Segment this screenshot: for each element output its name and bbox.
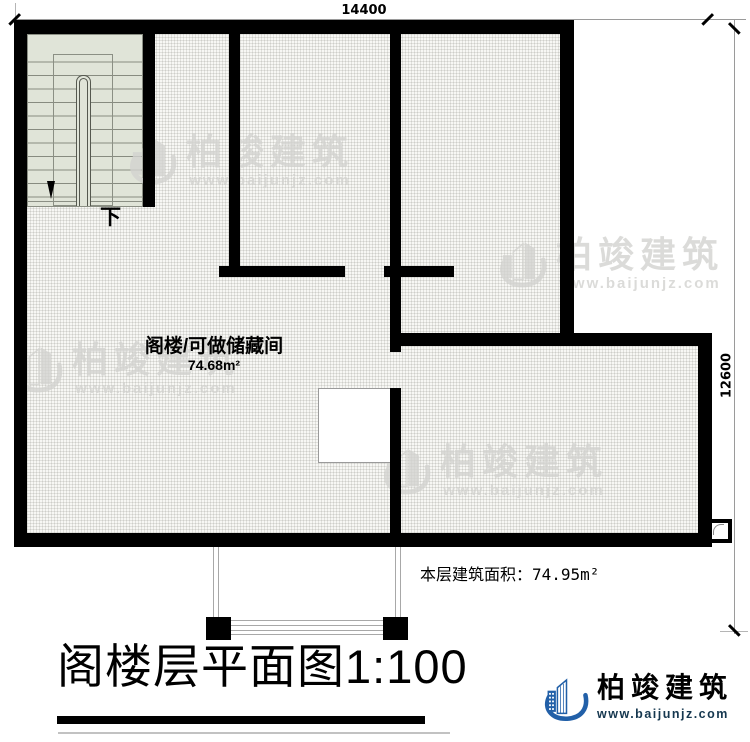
- sheet-title: 阁楼层平面图1:100: [57, 641, 468, 693]
- sheet-title-text: 阁楼层平面图: [57, 640, 345, 693]
- watermark: 柏竣建筑 www.baijunjz.com: [382, 443, 608, 499]
- watermark-url: www.baijunjz.com: [440, 482, 608, 499]
- wall-exterior-right-upper: [560, 20, 574, 346]
- floorplan-canvas: 下 柏竣建筑 www.baijunjz.com 柏竣建筑 www.baijunj…: [0, 0, 750, 742]
- dimension-line-right: [734, 19, 735, 634]
- stair-down-label: 下: [100, 207, 121, 228]
- porch-beam-line: [231, 630, 383, 631]
- room-label: 阁楼/可做储藏间 74.68m²: [114, 336, 314, 373]
- stair-railing-inner: [79, 78, 88, 206]
- porch-column: [206, 617, 231, 640]
- brand-name: 柏竣建筑: [597, 673, 733, 704]
- floor-area-lower-right: [560, 346, 698, 533]
- floor-area-note: 本层建筑面积：74.95m²: [420, 561, 599, 585]
- wall-interior-stub-2: [384, 266, 454, 277]
- title-underline-thin: [58, 732, 450, 734]
- staircase: [27, 34, 143, 207]
- floor-void-opening: [318, 388, 394, 463]
- dimension-height-label: 12600: [720, 346, 735, 406]
- watermark-url: www.baijunjz.com: [556, 275, 724, 292]
- watermark-text: 柏竣建筑 www.baijunjz.com: [556, 236, 724, 292]
- room-name: 阁楼/可做储藏间: [114, 336, 314, 358]
- wall-interior-stub-1: [219, 266, 345, 277]
- porch-column: [383, 617, 408, 640]
- porch-beam-line: [231, 620, 383, 621]
- corner-flue-box: [708, 519, 732, 543]
- wall-interior-vertical-2-upper: [390, 34, 401, 352]
- brand-logo-icon: [543, 673, 590, 725]
- title-underline-bar: [57, 716, 425, 724]
- watermark-url: www.baijunjz.com: [72, 380, 240, 397]
- watermark-text: 柏竣建筑 www.baijunjz.com: [440, 443, 608, 499]
- wall-interior-vertical-2-lower: [390, 388, 401, 533]
- watermark: 柏竣建筑 www.baijunjz.com: [498, 236, 724, 292]
- watermark-text: 柏竣建筑 www.baijunjz.com: [186, 133, 354, 189]
- sheet-title-scale: 1:100: [345, 640, 468, 693]
- stair-down-arrow-icon: [47, 181, 55, 199]
- porch-beam-line: [231, 634, 383, 635]
- watermark-brand-name: 柏竣建筑: [556, 236, 724, 274]
- wall-exterior-top: [14, 20, 574, 34]
- stair-railing: [76, 75, 91, 206]
- watermark-brand-name: 柏竣建筑: [186, 133, 354, 171]
- room-area: 74.68m²: [114, 358, 314, 373]
- brand-logo: 柏竣建筑 www.baijunjz.com: [543, 673, 733, 725]
- porch-beam-line: [231, 625, 383, 626]
- porch-post-line: [213, 547, 214, 619]
- wall-lower-right-room-top: [390, 333, 712, 346]
- wall-lower-right-room-right: [698, 333, 712, 547]
- dimension-line-top: [14, 19, 746, 20]
- porch-post-line: [400, 547, 401, 619]
- brand-building-icon: [498, 236, 548, 292]
- brand-text: 柏竣建筑 www.baijunjz.com: [597, 673, 733, 721]
- watermark-url: www.baijunjz.com: [186, 172, 354, 189]
- flue-arc: [713, 524, 724, 535]
- porch-post-line: [218, 547, 219, 619]
- watermark-brand-name: 柏竣建筑: [440, 443, 608, 481]
- porch-post-line: [395, 547, 396, 619]
- wall-interior-vertical-1: [229, 34, 240, 277]
- wall-stair-side: [143, 34, 155, 207]
- watermark: 柏竣建筑 www.baijunjz.com: [128, 133, 354, 189]
- dimension-width-label: 14400: [314, 3, 414, 18]
- brand-url: www.baijunjz.com: [597, 707, 733, 721]
- wall-exterior-bottom: [14, 533, 712, 547]
- wall-exterior-left: [14, 20, 27, 547]
